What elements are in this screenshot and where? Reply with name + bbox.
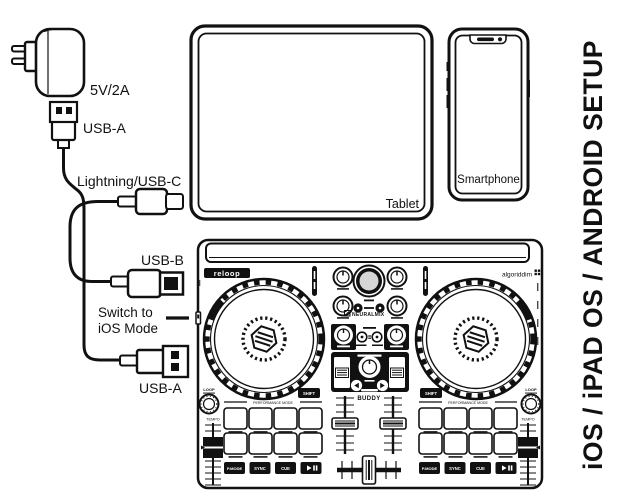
- tempo-label-left: TEMPO: [206, 418, 220, 422]
- deck-2-bar: [423, 266, 428, 296]
- usb-b-label: USB-B: [141, 252, 184, 268]
- svg-text:PERFORMANCE MODE: PERFORMANCE MODE: [253, 401, 293, 405]
- power-adapter: [12, 29, 84, 96]
- usb-a-bottom-label: USB-A: [139, 380, 182, 396]
- shift-button-left: [298, 388, 320, 398]
- svg-text:PERFORMANCE MODE: PERFORMANCE MODE: [448, 401, 488, 405]
- smartphone: Smartphone: [447, 29, 531, 200]
- loop-label-right: LOOP: [525, 387, 537, 392]
- data-cable: [70, 202, 121, 282]
- fx-section: [331, 352, 409, 392]
- deck-1-bar: [312, 266, 317, 296]
- adapter-body: [36, 29, 84, 96]
- loop-label-left: LOOP: [203, 387, 215, 392]
- loop-encoder-right: [522, 395, 541, 414]
- loop-encoder-left: [200, 395, 219, 414]
- fx-select-left-button: [351, 380, 362, 391]
- page-title: iOS / iPAD OS / ANDROID SETUP: [578, 40, 608, 470]
- lightning-label: Lightning/USB-C: [77, 173, 181, 189]
- tablet-label: Tablet: [386, 197, 420, 211]
- fx-fader-left: [334, 357, 350, 388]
- smartphone-label: Smartphone: [457, 174, 520, 186]
- filter-section-left: [331, 324, 356, 350]
- fx-select-right-button: [377, 380, 388, 391]
- setup-diagram: SHIFT P.MODE SYNC CUE 5V/2A: [0, 0, 620, 500]
- svg-text:reloop: reloop: [214, 269, 241, 278]
- usb-a-top-label: USB-A: [83, 120, 126, 136]
- ios-mode-switch: [196, 312, 201, 324]
- model-label: BUDDY: [357, 396, 380, 402]
- filter-section-right: [384, 324, 409, 350]
- svg-text:NEURALMIX: NEURALMIX: [352, 312, 385, 318]
- fx-fader-right: [389, 357, 405, 388]
- tempo-label-right: TEMPO: [521, 418, 535, 422]
- tablet: Tablet: [191, 26, 432, 219]
- switch-note: Switch to iOS Mode: [98, 305, 189, 336]
- dj-controller: reloop algoriddim: [196, 240, 542, 488]
- shift-button-right: [420, 388, 442, 398]
- lightning-connector: [118, 189, 183, 214]
- phone-speaker: [477, 38, 494, 42]
- switch-note-line1: Switch to: [98, 305, 153, 320]
- usb-a-connector-bottom: [120, 346, 188, 377]
- power-rating-label: 5V/2A: [90, 83, 130, 99]
- reloop-logo: reloop: [204, 268, 250, 278]
- switch-note-line2: iOS Mode: [98, 321, 158, 336]
- svg-text:algoriddim: algoriddim: [502, 272, 532, 279]
- usb-a-connector-top: [50, 102, 77, 148]
- usb-b-connector: [111, 270, 183, 297]
- phone-camera: [498, 37, 502, 41]
